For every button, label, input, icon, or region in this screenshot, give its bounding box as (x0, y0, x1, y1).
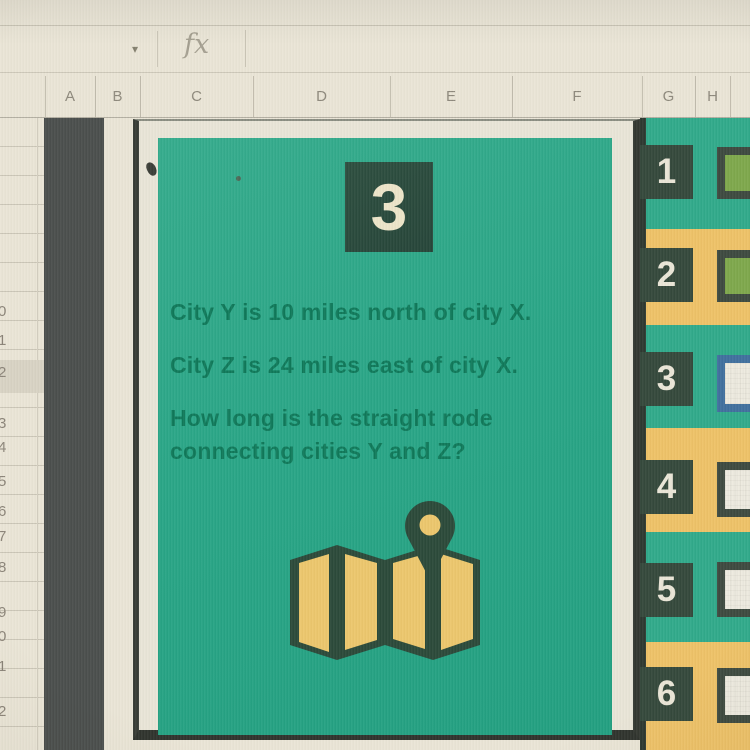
problem-text-line: City Z is 24 miles east of city X. (170, 351, 518, 379)
answer-number-1: 1 (640, 145, 693, 199)
column-header-b[interactable]: B (95, 74, 140, 118)
column-header-a[interactable]: A (45, 74, 95, 118)
header-top-line (0, 72, 750, 73)
column-header-h[interactable]: H (695, 74, 730, 118)
answer-box-1[interactable] (717, 147, 750, 199)
answer-box-2[interactable] (717, 250, 750, 302)
row-header[interactable]: 7 (0, 528, 12, 546)
answer-box-6[interactable] (717, 668, 750, 723)
spreadsheet-screenshot: ▾ fx A B C D E F G H 0 1 2 3 4 5 6 7 8 9… (0, 0, 750, 750)
row-header[interactable]: 6 (0, 503, 12, 521)
row-header[interactable]: 8 (0, 559, 12, 577)
name-box-dropdown-icon[interactable]: ▾ (132, 43, 138, 55)
row-header[interactable]: 0 (0, 303, 12, 321)
answer-box-5[interactable] (717, 562, 750, 617)
row-header[interactable]: 5 (0, 473, 12, 491)
fx-icon: fx (184, 31, 209, 58)
column-a-dark-fill[interactable] (44, 118, 104, 750)
row-header[interactable]: 2 (0, 703, 12, 721)
row-header[interactable]: 3 (0, 415, 12, 433)
column-header-e[interactable]: E (390, 74, 512, 118)
answer-number-2: 2 (640, 248, 693, 302)
column-separator (390, 76, 391, 117)
row-header[interactable]: 1 (0, 658, 12, 676)
column-separator (140, 76, 141, 117)
column-separator (95, 76, 96, 117)
formula-bar-divider (157, 31, 158, 67)
column-separator (695, 76, 696, 117)
problem-text-line: connecting cities Y and Z? (170, 437, 466, 465)
column-header-c[interactable]: C (140, 74, 253, 118)
row-header[interactable]: 4 (0, 439, 12, 457)
answer-number-3: 3 (640, 352, 693, 406)
answer-number-5: 5 (640, 563, 693, 617)
column-separator (512, 76, 513, 117)
column-header-d[interactable]: D (253, 74, 390, 118)
answer-number-4: 4 (640, 460, 693, 514)
column-separator (642, 76, 643, 117)
column-header-f[interactable]: F (512, 74, 642, 118)
formula-input-cursor[interactable] (245, 30, 246, 67)
dust-speck (236, 176, 241, 181)
problem-number-badge: 3 (345, 162, 433, 252)
answer-panel: 1 2 3 4 5 6 (640, 118, 750, 750)
column-separator (730, 76, 731, 117)
map-icon (290, 500, 480, 662)
problem-text-line: City Y is 10 miles north of city X. (170, 298, 532, 326)
row-header[interactable]: 2 (0, 364, 12, 382)
formula-bar-top-divider (0, 25, 750, 26)
problem-text-line: How long is the straight rode (170, 404, 493, 432)
column-separator (253, 76, 254, 117)
answer-box-4[interactable] (717, 462, 750, 517)
column-separator (45, 76, 46, 117)
column-header-g[interactable]: G (642, 74, 695, 118)
row-header[interactable]: 1 (0, 332, 12, 350)
row-header[interactable]: 0 (0, 628, 12, 646)
answer-number-6: 6 (640, 667, 693, 721)
row-header[interactable]: 9 (0, 604, 12, 622)
row-header-border (37, 118, 38, 750)
answer-panel-edge (640, 118, 646, 750)
answer-box-3-selected[interactable] (717, 355, 750, 412)
